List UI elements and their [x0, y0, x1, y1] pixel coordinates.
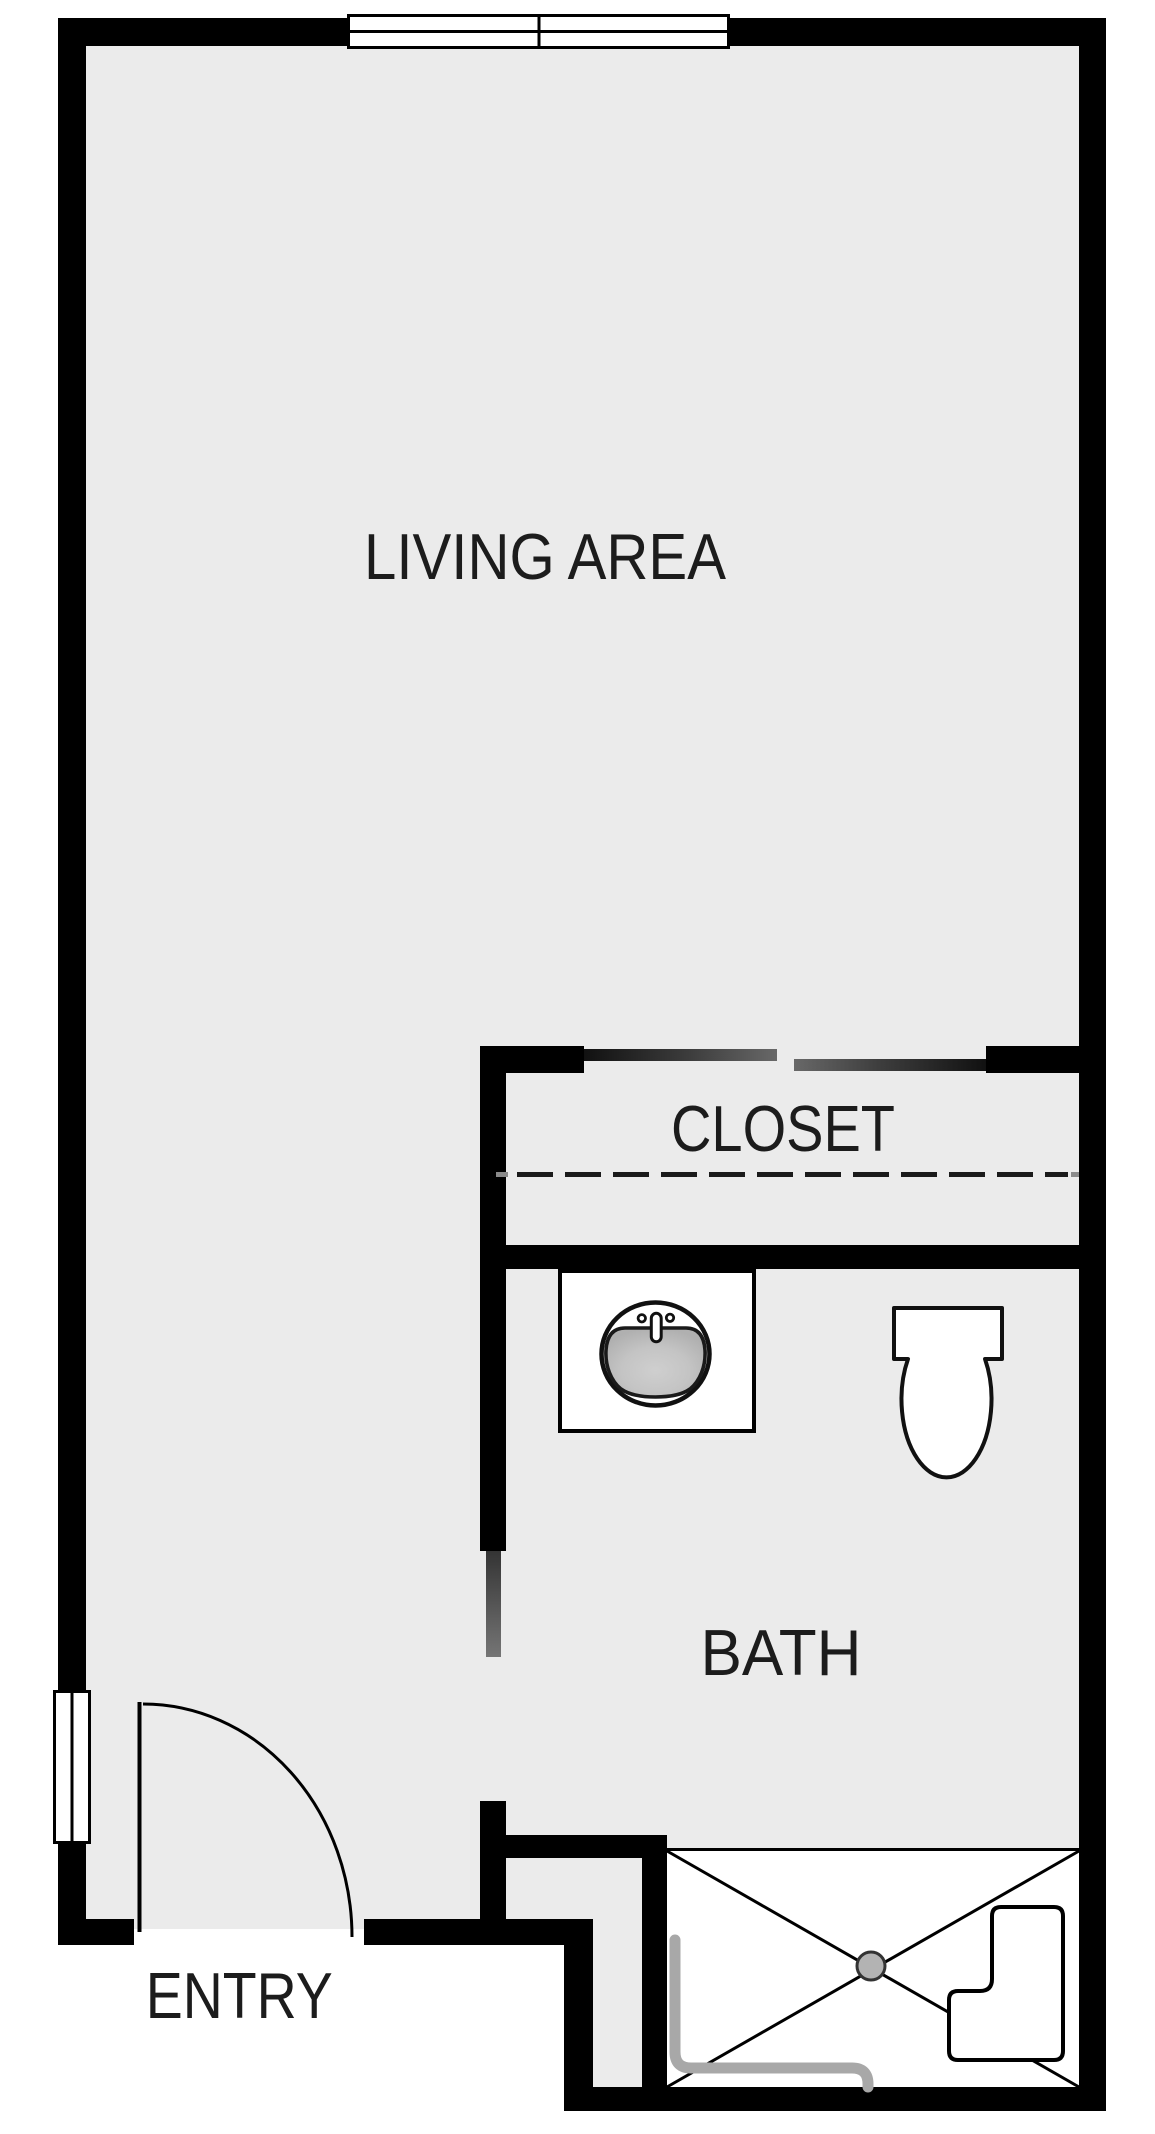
- svg-text:BATH: BATH: [701, 1616, 862, 1689]
- svg-text:CLOSET: CLOSET: [671, 1092, 895, 1165]
- svg-text:ENTRY: ENTRY: [146, 1959, 333, 2032]
- svg-text:LIVING AREA: LIVING AREA: [364, 520, 727, 593]
